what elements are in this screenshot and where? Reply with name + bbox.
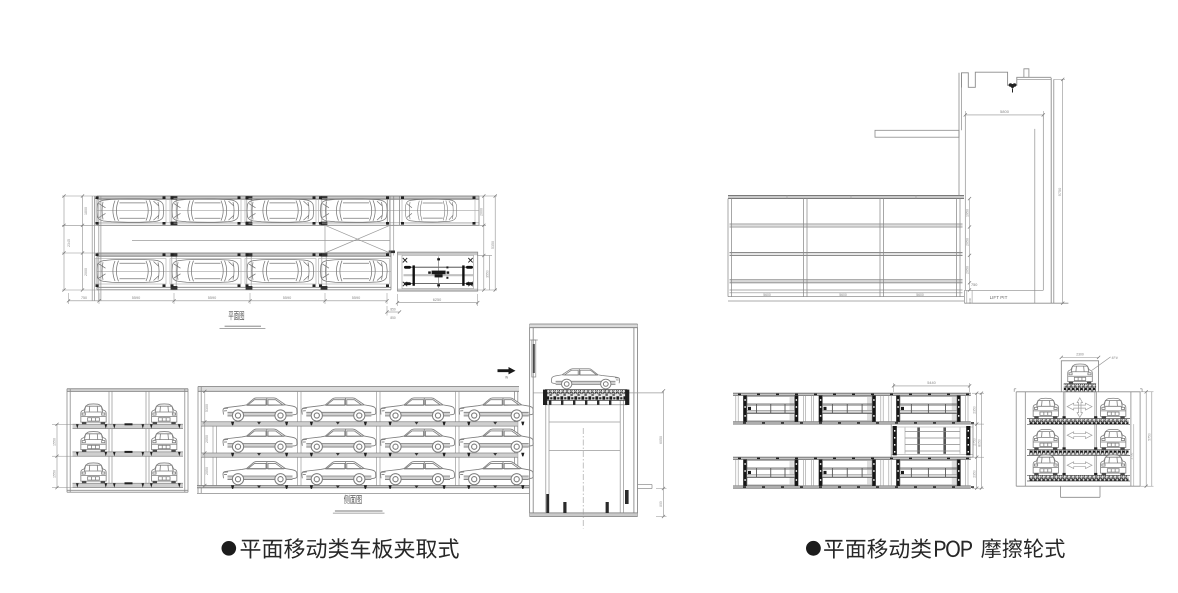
svg-text:8050: 8050 xyxy=(978,439,982,447)
svg-text:1800: 1800 xyxy=(84,207,88,215)
svg-text:800: 800 xyxy=(659,501,663,507)
svg-text:5590: 5590 xyxy=(283,296,291,300)
svg-text:1950: 1950 xyxy=(965,209,969,217)
svg-text:850: 850 xyxy=(390,316,396,320)
svg-text:5300: 5300 xyxy=(205,404,209,412)
svg-text:LIFT PIT: LIFT PIT xyxy=(990,295,1008,300)
svg-text:5600: 5600 xyxy=(839,293,847,297)
svg-text:IN: IN xyxy=(505,375,509,379)
svg-text:2750: 2750 xyxy=(973,438,977,446)
svg-text:2050: 2050 xyxy=(205,467,209,475)
svg-text:6050: 6050 xyxy=(659,436,663,444)
svg-text:5590: 5590 xyxy=(208,296,216,300)
svg-text:5350: 5350 xyxy=(491,241,495,249)
svg-text:5750: 5750 xyxy=(1148,433,1152,441)
svg-text:3550: 3550 xyxy=(485,270,489,278)
svg-text:9750: 9750 xyxy=(1058,188,1062,196)
svg-text:2000: 2000 xyxy=(480,208,484,216)
svg-text:850: 850 xyxy=(390,308,396,312)
svg-text:1000: 1000 xyxy=(968,297,972,304)
svg-text:5600: 5600 xyxy=(916,293,924,297)
svg-text:2050: 2050 xyxy=(965,238,969,246)
svg-text:5600: 5600 xyxy=(763,293,771,297)
svg-text:2345: 2345 xyxy=(67,239,71,247)
svg-text:1550: 1550 xyxy=(53,470,57,478)
svg-text:1550: 1550 xyxy=(53,438,57,446)
svg-text:750: 750 xyxy=(81,296,87,300)
svg-text:2050: 2050 xyxy=(205,435,209,443)
svg-text:2750: 2750 xyxy=(1130,452,1134,459)
svg-text:6250: 6250 xyxy=(433,298,441,302)
svg-text:750: 750 xyxy=(971,283,977,287)
svg-text:5590: 5590 xyxy=(132,296,140,300)
svg-text:2350: 2350 xyxy=(973,470,977,478)
svg-text:5590: 5590 xyxy=(352,296,360,300)
svg-text:2350: 2350 xyxy=(973,406,977,414)
svg-text:2000: 2000 xyxy=(84,268,88,276)
svg-text:2050: 2050 xyxy=(965,266,969,274)
svg-text:5440: 5440 xyxy=(927,381,935,385)
svg-text:5800: 5800 xyxy=(1000,109,1010,114)
svg-text:2300: 2300 xyxy=(1076,353,1084,357)
svg-text:4F#: 4F# xyxy=(1112,356,1118,360)
